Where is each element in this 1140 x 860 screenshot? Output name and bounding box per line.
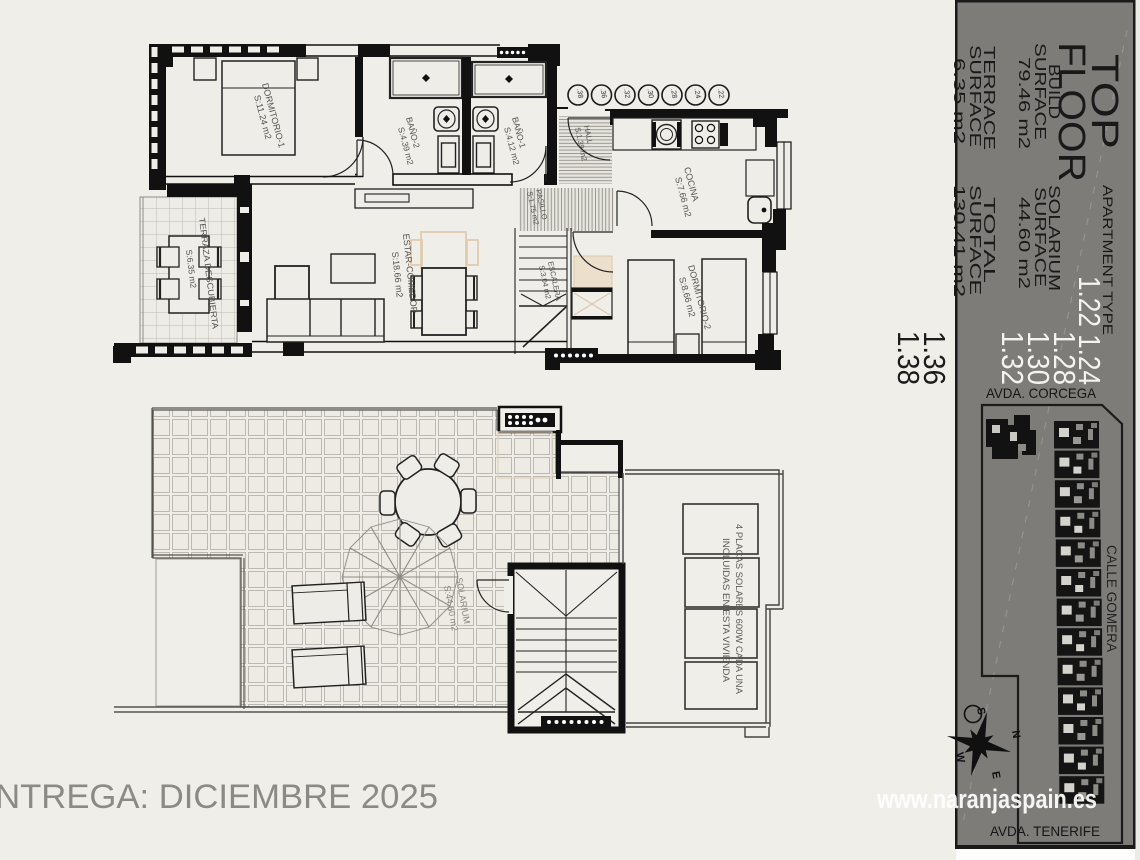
svg-text:1.32: 1.32 [995,331,1030,385]
svg-text:79.46 m2: 79.46 m2 [1015,57,1032,149]
svg-text:CALLE GOMERA: CALLE GOMERA [1104,545,1119,652]
svg-text:SURFACE: SURFACE [1031,43,1048,140]
svg-text:AVDA. TENERIFE: AVDA. TENERIFE [990,823,1100,839]
svg-text:ENTREGA: DICIEMBRE 2025: ENTREGA: DICIEMBRE 2025 [0,778,438,816]
svg-text:INCLUIDAS EN ESTA VIVIENDA: INCLUIDAS EN ESTA VIVIENDA [721,538,731,682]
svg-text:SURFACE: SURFACE [966,185,983,295]
svg-text:SURFACE: SURFACE [1031,187,1048,287]
svg-text:44.60 m2: 44.60 m2 [1015,197,1032,289]
svg-text:SURFACE: SURFACE [966,45,983,147]
svg-text:130.41 m2: 130.41 m2 [950,185,967,297]
svg-text:AVDA. CORCEGA: AVDA. CORCEGA [986,385,1097,401]
svg-text:www.naranjaspain.es: www.naranjaspain.es [876,784,1097,814]
svg-text:1.38: 1.38 [891,331,926,385]
svg-text:6.35 m2: 6.35 m2 [950,58,967,144]
svg-text:4 PLACAS SOLARES 600W CADA UNA: 4 PLACAS SOLARES 600W CADA UNA [734,524,744,694]
